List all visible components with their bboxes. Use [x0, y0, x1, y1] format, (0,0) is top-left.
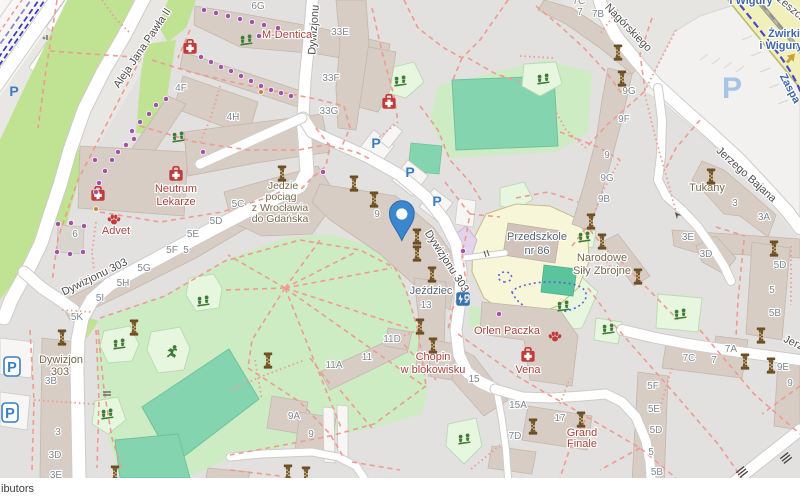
svg-text:11: 11 [362, 352, 373, 363]
svg-text:3D: 3D [700, 249, 713, 260]
svg-text:5: 5 [769, 285, 775, 296]
svg-text:33E: 33E [331, 27, 349, 38]
svg-text:9: 9 [787, 378, 793, 389]
svg-text:M-Dentica: M-Dentica [262, 29, 313, 41]
svg-text:5G: 5G [137, 263, 151, 274]
svg-text:5E: 5E [187, 229, 200, 240]
svg-text:Lekarze: Lekarze [156, 196, 195, 208]
svg-text:15: 15 [468, 374, 480, 385]
svg-text:5E: 5E [648, 404, 661, 415]
svg-text:5I: 5I [96, 293, 104, 304]
svg-text:5D: 5D [650, 425, 663, 436]
svg-text:15A: 15A [509, 400, 527, 411]
svg-text:13: 13 [420, 300, 432, 311]
svg-text:9F: 9F [618, 114, 630, 125]
svg-text:do Gdańska: do Gdańska [252, 213, 309, 225]
svg-text:7D: 7D [509, 431, 522, 442]
svg-text:i Wigury: i Wigury [759, 40, 800, 52]
svg-text:9: 9 [374, 209, 380, 220]
svg-text:5B: 5B [651, 467, 664, 478]
svg-text:33F: 33F [322, 73, 339, 84]
svg-text:5K: 5K [71, 312, 84, 323]
svg-text:Vena: Vena [515, 364, 541, 376]
svg-text:3E: 3E [682, 232, 695, 243]
svg-text:9G: 9G [600, 173, 614, 184]
svg-text:5: 5 [648, 447, 654, 458]
svg-text:Neutrum: Neutrum [155, 183, 197, 195]
svg-text:5C: 5C [232, 199, 245, 210]
svg-text:7C: 7C [573, 0, 586, 7]
svg-text:w blokowisku: w blokowisku [400, 364, 466, 376]
svg-text:11A: 11A [325, 360, 342, 371]
svg-text:3: 3 [732, 198, 738, 209]
svg-text:7B: 7B [592, 9, 605, 20]
svg-text:Dywizjon: Dywizjon [39, 354, 83, 366]
svg-text:6: 6 [72, 229, 78, 240]
svg-text:6G: 6G [251, 1, 265, 12]
svg-text:3A: 3A [758, 212, 771, 223]
svg-text:5B: 5B [769, 308, 782, 319]
svg-text:Narodowe: Narodowe [577, 252, 627, 264]
svg-text:9: 9 [604, 150, 610, 161]
svg-text:Przedszkole: Przedszkole [507, 231, 567, 243]
svg-text:7: 7 [711, 355, 717, 366]
svg-text:ibutors: ibutors [1, 483, 35, 495]
svg-text:9: 9 [308, 429, 314, 440]
svg-text:4F: 4F [175, 83, 187, 94]
svg-text:5F: 5F [166, 245, 178, 256]
svg-text:7C: 7C [683, 353, 696, 364]
svg-text:Żwirki: Żwirki [768, 27, 800, 40]
svg-text:17: 17 [554, 413, 566, 424]
svg-text:5H: 5H [117, 278, 130, 289]
svg-text:Orlen Paczka: Orlen Paczka [474, 325, 541, 337]
svg-text:Siły Zbrojne: Siły Zbrojne [573, 265, 631, 277]
svg-text:9E: 9E [777, 362, 790, 373]
svg-text:5F: 5F [647, 381, 659, 392]
svg-text:5D: 5D [210, 216, 223, 227]
svg-text:Finale: Finale [567, 438, 597, 450]
svg-text:Advet: Advet [102, 225, 130, 237]
svg-text:i Wigury: i Wigury [729, 0, 773, 7]
svg-text:3B: 3B [45, 376, 58, 387]
svg-text:nr 86: nr 86 [524, 245, 549, 257]
svg-text:7: 7 [577, 7, 583, 18]
svg-text:9G: 9G [622, 86, 636, 97]
svg-text:5: 5 [183, 245, 189, 256]
svg-text:9A: 9A [288, 411, 301, 422]
svg-text:9B: 9B [598, 194, 611, 205]
svg-text:Jeździec: Jeździec [410, 285, 453, 297]
svg-text:3D: 3D [49, 450, 62, 461]
svg-text:11D: 11D [383, 334, 401, 345]
svg-text:5D: 5D [774, 260, 787, 271]
svg-text:3: 3 [55, 427, 61, 438]
svg-text:4H: 4H [227, 112, 240, 123]
svg-text:33G: 33G [320, 106, 339, 117]
svg-text:7A: 7A [725, 344, 738, 355]
svg-text:P: P [722, 72, 742, 105]
